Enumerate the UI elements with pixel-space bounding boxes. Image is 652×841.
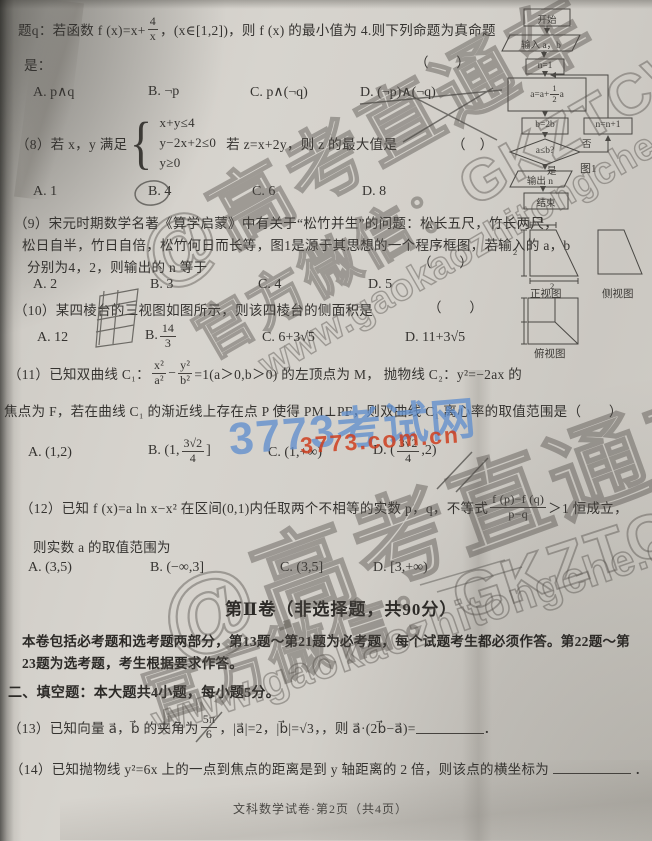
question-7-line1: 题q：若函数 f (x)=x+ 4 x ，(x∈[1,2])，则 f (x) 的…: [18, 12, 496, 46]
front-view-label: 正视图: [530, 286, 562, 301]
question-11-line1: （11）已知双曲线 C₁： x² a² − y² b² =1(a＞0,b＞0) …: [8, 352, 522, 394]
fraction-denominator: 2: [550, 95, 558, 105]
flowchart-init: n=1: [526, 61, 564, 71]
question-8: （8）若 x，y 满足 { x+y≤4 y−2x+2≤0 y≥0 若 z=x+2…: [16, 110, 397, 176]
q10-option-c: C. 6+3√5: [262, 330, 315, 346]
option-text: ,2): [421, 443, 436, 459]
side-view-label: 侧视图: [602, 286, 634, 301]
q7-option-a: A. p∧q: [33, 84, 74, 101]
fraction-denominator: b²: [178, 374, 192, 388]
q8-text: 若 z=x+2y，则 z 的最大值是: [226, 133, 397, 153]
fraction-numerator: 3√2: [182, 437, 205, 452]
bracket: （ ）: [415, 55, 470, 70]
fraction-denominator: 3: [160, 337, 176, 351]
q8-answer-bracket: （ ）: [452, 133, 493, 153]
flowchart-condition: a≤b?: [510, 146, 580, 156]
option-label: B.: [145, 328, 158, 344]
fraction-numerator: 5π: [201, 713, 218, 728]
option-text: ]: [206, 443, 211, 459]
system-brace: {: [130, 113, 153, 173]
answer-blank: [416, 720, 484, 734]
bracket: （ ）: [452, 137, 493, 152]
q14-text: ．: [634, 762, 648, 777]
q9-option-c: C. 4: [258, 277, 281, 293]
q8-option-d: D. 8: [362, 184, 386, 200]
q13-text: （13）已知向量 a⃗，b⃗ 的夹角为: [8, 717, 199, 737]
q12-option-b: B. (−∞,3]: [150, 560, 204, 576]
fraction-numerator: 4: [148, 15, 158, 30]
minus-sign: −: [168, 365, 176, 381]
inequality-3: y≥0: [159, 153, 216, 173]
inequality-1: x+y≤4: [159, 113, 216, 133]
section-2-instructions-line2: 23题为选考题，考生根据要求作答。: [22, 652, 243, 672]
fraction-denominator: x: [148, 30, 158, 44]
q9-option-b: B. 3: [150, 277, 173, 293]
fraction-denominator: 4: [397, 452, 420, 466]
q11-text: =1(a＞0,b＞0) 的左顶点为 M， 抛物线 C₂：y²=−2ax 的: [194, 363, 522, 383]
fraction: y² b²: [178, 359, 192, 388]
q10-option-b: B. 14 3: [145, 316, 178, 356]
bracket: （ ）: [567, 404, 622, 419]
q11-option-b: B. (1, 3√2 4 ]: [148, 428, 211, 474]
fraction: 3√2 4: [397, 437, 420, 466]
flowchart-no-label: 否: [582, 136, 592, 150]
q9-option-a: A. 2: [33, 277, 57, 293]
watermark-3773-site: 3773考试网: [226, 381, 480, 467]
q11-option-d: D. ( 3√2 4 ,2): [373, 428, 437, 474]
option-text: D. (: [373, 443, 395, 459]
front-view-top-dimension: 1: [540, 215, 544, 225]
flowchart-end: 结束: [524, 195, 568, 209]
fraction-numerator: y²: [178, 359, 192, 374]
inequality-2: y−2x+2≤0: [159, 133, 216, 153]
question-10-line: （10）某四棱台的三视图如图所示，则该四棱台的侧面积是: [14, 299, 373, 319]
fraction: x² a²: [152, 359, 166, 388]
fraction: 14 3: [160, 322, 176, 351]
q12-text: ＞1 恒成立，: [548, 497, 628, 517]
q8-option-a: A. 1: [33, 184, 57, 200]
fraction-numerator: f (p)−f (q): [490, 493, 546, 508]
top-view-label: 俯视图: [534, 346, 566, 361]
fraction: 1 2: [550, 84, 558, 105]
fraction-denominator: 4: [182, 452, 205, 466]
fraction: 5π 6: [201, 713, 218, 742]
question-9-line3: 分别为4，2，则输出的 n 等于: [27, 256, 207, 276]
q12-option-a: A. (3,5): [28, 560, 72, 576]
question-7-line2: 是：: [24, 54, 52, 74]
question-14: （14）已知抛物线 y²=6x 上的一点到焦点的距离是到 y 轴距离的 2 倍，…: [10, 758, 648, 778]
flowchart-assign-a: a=a+ 1 2 a: [508, 80, 586, 109]
flowchart-figure-1: 开始 输入 a，b n=1 a=a+ 1 2 a b=2b n=n+1 a≤b?…: [496, 5, 652, 217]
fill-in-blank-header: 二、填空题：本大题共4小题，每小题5分。: [8, 682, 280, 702]
q8-option-b: B. 4: [148, 184, 171, 200]
fraction-numerator: 14: [160, 322, 176, 337]
q7-answer-bracket: （ ）: [415, 51, 470, 71]
q10-answer-bracket: （ ）: [428, 296, 483, 316]
q11-text: （11）已知双曲线 C₁：: [8, 363, 150, 383]
q9-option-d: D. 5: [368, 277, 392, 293]
q7-text: 是：: [24, 58, 52, 73]
fraction: 4 x: [148, 15, 158, 44]
q11-text: 焦点为 F，若在曲线 C₁ 的渐近线上存在点 P 使得 PM⊥PF，则双曲线 C…: [4, 404, 567, 419]
q10-option-a: A. 12: [37, 330, 68, 346]
fraction-denominator: p−q: [490, 508, 546, 522]
question-12-line1: （12）已知 f (x)=a ln x−x² 在区间(0,1)内任取两个不相等的…: [20, 488, 628, 526]
q7-text: 题q：若函数 f (x)=x+: [18, 19, 146, 39]
question-13: （13）已知向量 a⃗，b⃗ 的夹角为 5π 6 ，|a⃗|=2，|b⃗|=√3…: [8, 708, 497, 746]
q9-answer-bracket: （ ）: [418, 251, 473, 271]
q13-text: ．: [484, 717, 498, 737]
flowchart-output: 输出 n: [512, 173, 568, 187]
fraction-denominator: 6: [201, 728, 218, 742]
answer-blank: [553, 760, 631, 774]
flowchart-increment: n=n+1: [584, 120, 632, 130]
inequality-system: x+y≤4 y−2x+2≤0 y≥0: [159, 113, 216, 173]
q10-option-d: D. 11+3√5: [405, 330, 465, 346]
fraction: f (p)−f (q) p−q: [490, 493, 546, 522]
question-9-line2: 松日自半，竹日自倍，松竹何日而长等，图1是源于其思想的一个程序框图，若输入的 a…: [22, 234, 570, 254]
flowchart-input: 输入 a，b: [506, 37, 576, 51]
flowchart-assign-b: b=2b: [522, 120, 568, 130]
fraction-numerator: 3√2: [397, 437, 420, 452]
question-11-line2: 焦点为 F，若在曲线 C₁ 的渐近线上存在点 P 使得 PM⊥PF，则双曲线 C…: [4, 400, 623, 420]
q8-text: （8）若 x，y 满足: [16, 133, 127, 153]
q11-option-a: A. (1,2): [28, 445, 72, 461]
fraction-numerator: x²: [152, 359, 166, 374]
q7-text: ，(x∈[1,2])，则 f (x) 的最小值为 4.则下列命题为真命题: [160, 19, 496, 39]
q7-option-b: B. ¬p: [148, 84, 179, 100]
front-view-height-dimension: 2: [513, 247, 517, 257]
q12-text: （12）已知 f (x)=a ln x−x² 在区间(0,1)内任取两个不相等的…: [20, 497, 488, 517]
three-view-diagram: 1 2 2 正视图 侧视图 俯视图: [500, 222, 650, 362]
flowchart-start: 开始: [524, 12, 570, 26]
q11-option-c: C. (1,+∞): [268, 445, 322, 461]
flowchart-text: a: [560, 90, 564, 100]
q14-text: （14）已知抛物线 y²=6x 上的一点到焦点的距离是到 y 轴距离的 2 倍，…: [10, 762, 549, 777]
flowchart-text: a=a+: [530, 90, 549, 100]
q13-text: ，|a⃗|=2，|b⃗|=√3，，则 a⃗·(2b⃗−a⃗)=: [219, 717, 415, 737]
option-text: B. (1,: [148, 443, 180, 459]
question-9-line1: （9）宋元时期数学名著《算学启蒙》中有关于“松竹并生”的问题：松长五尺，竹长两尺…: [14, 212, 558, 232]
q7-option-c: C. p∧(¬q): [250, 84, 308, 101]
q8-option-c: C. 6: [252, 184, 275, 200]
fraction: 3√2 4: [182, 437, 205, 466]
q12-option-d: D. [3,+∞): [373, 560, 428, 576]
q12-option-c: C. (3,5]: [280, 560, 323, 576]
q7-option-d: D. (¬p)∧(¬q): [360, 84, 436, 101]
fraction-denominator: a²: [152, 374, 166, 388]
page-footer: 文科数学试卷·第2页（共4页）: [233, 800, 408, 817]
question-12-line2: 则实数 a 的取值范围为: [33, 536, 171, 556]
section-2-title: 第Ⅱ卷（非选择题，共90分）: [225, 595, 457, 620]
section-2-instructions-line1: 本卷包括必考题和选考题两部分，第13题～第21题为必考题，每个试题考生都必须作答…: [22, 630, 630, 650]
figure-1-caption: 图1: [580, 160, 597, 176]
exam-paper-photo: 题q：若函数 f (x)=x+ 4 x ，(x∈[1,2])，则 f (x) 的…: [0, 0, 652, 841]
